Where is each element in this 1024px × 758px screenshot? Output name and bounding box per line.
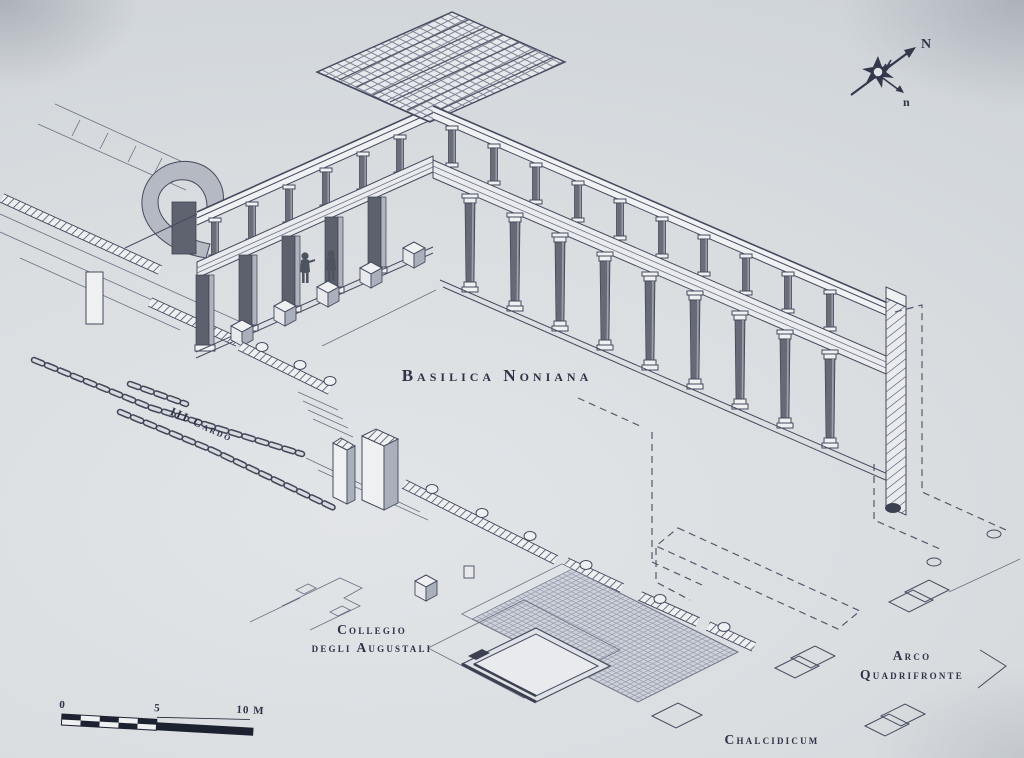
label-chalcidicum: Chalcidicum [725, 732, 820, 747]
compass-rose: N n [851, 37, 932, 109]
scale-ten: 10 M [236, 704, 265, 718]
northwest-colonnade [125, 106, 436, 358]
cutaway-end-wall [885, 287, 906, 515]
dashed-reconstruction-outline [578, 305, 1006, 629]
collegio-pavement-area [250, 564, 738, 702]
label-basilica-noniana: Basilica Noniana [402, 366, 593, 385]
label-collegio-line1: Collegio [337, 622, 407, 637]
compass-small-north-label: n [903, 95, 911, 109]
roof-beam-grid [317, 12, 565, 122]
scale-five: 5 [154, 702, 161, 714]
ruined-wall-chain [34, 360, 334, 508]
scale-bar: 0 5 10 M [58, 694, 265, 736]
axonometric-drawing: N n 0 5 10 M Basilica Noniana III Cardo … [0, 0, 1024, 758]
labels: Basilica Noniana III Cardo Collegio degl… [168, 366, 964, 747]
northeast-colonnade [433, 106, 906, 515]
label-arco-line1: Arco [893, 648, 932, 663]
arco-quadrifronte-piers [652, 530, 1020, 736]
label-arco-line2: Quadrifronte [860, 667, 964, 682]
scale-zero: 0 [59, 699, 66, 711]
chalcidicum-footprint [652, 703, 702, 728]
compass-north-label: N [921, 37, 932, 52]
photographed-plan-page: N n 0 5 10 M Basilica Noniana III Cardo … [0, 0, 1024, 758]
tall-pier [362, 429, 398, 510]
label-collegio-line2: degli Augustali [312, 640, 433, 655]
north-arrowhead [904, 47, 916, 58]
tall-pier [333, 438, 355, 504]
